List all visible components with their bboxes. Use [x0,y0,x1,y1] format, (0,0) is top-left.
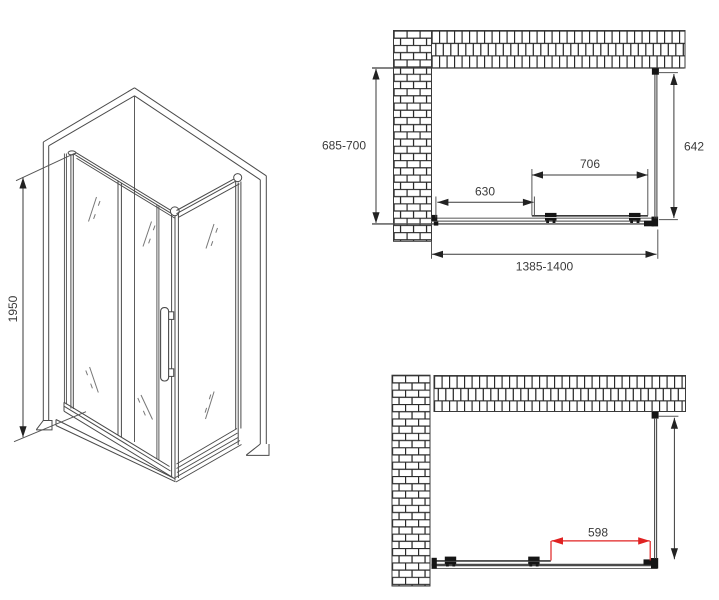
svg-text:642: 642 [684,139,704,153]
svg-text:1385-1400: 1385-1400 [516,259,574,273]
svg-text:685-700: 685-700 [322,139,366,153]
svg-text:1950: 1950 [6,295,20,322]
svg-text:598: 598 [588,526,608,540]
svg-text:630: 630 [475,185,495,199]
svg-text:706: 706 [580,157,600,171]
